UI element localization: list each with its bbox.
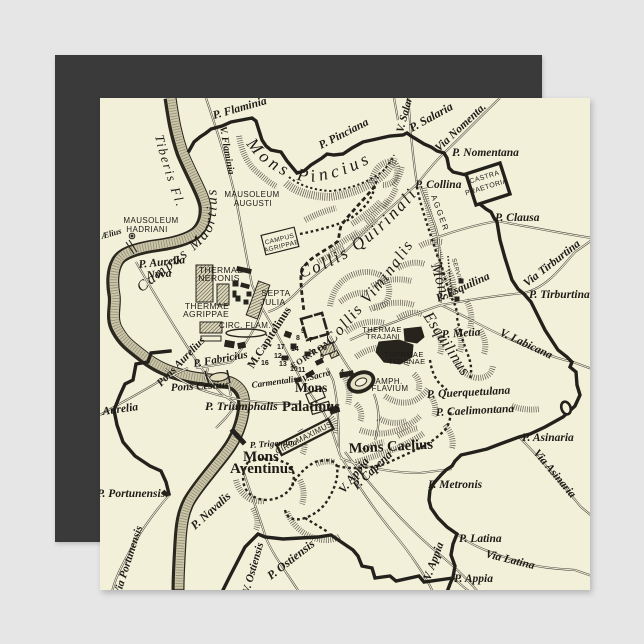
svg-text:P. Appia: P. Appia: [454, 573, 493, 585]
svg-text:JULIA: JULIA: [260, 297, 285, 307]
svg-text:P. Querquetulana: P. Querquetulana: [427, 385, 511, 401]
svg-text:Via Tirburtina: Via Tirburtina: [521, 238, 582, 290]
svg-text:P. Fabricius: P. Fabricius: [192, 349, 248, 370]
svg-text:Aurelia: Aurelia: [101, 401, 139, 418]
svg-text:P. Ostiensis: P. Ostiensis: [264, 536, 317, 582]
svg-text:12: 12: [274, 353, 282, 360]
svg-text:6: 6: [323, 345, 327, 352]
svg-text:V. Appia: V. Appia: [422, 540, 447, 582]
svg-text:9: 9: [301, 328, 305, 335]
svg-text:10: 10: [290, 366, 298, 373]
svg-text:MAUSOLEUM: MAUSOLEUM: [224, 190, 279, 199]
svg-text:AGRIPPAE: AGRIPPAE: [183, 309, 229, 319]
svg-text:CIRC. FLAM.: CIRC. FLAM.: [219, 321, 271, 330]
svg-text:11: 11: [298, 367, 306, 374]
svg-text:P. Metronis: P. Metronis: [428, 479, 483, 491]
svg-text:AUGUSTI: AUGUSTI: [234, 199, 272, 208]
svg-text:P. Asinaria: P. Asinaria: [522, 432, 574, 444]
svg-text:Carmentalis: Carmentalis: [251, 374, 298, 390]
svg-text:P. Tirburtina: P. Tirburtina: [529, 289, 590, 301]
svg-text:Mons: Mons: [295, 380, 327, 395]
svg-text:Ælius: Ælius: [100, 225, 123, 241]
svg-text:Nova: Nova: [145, 267, 172, 282]
svg-text:P. Metia: P. Metia: [441, 326, 481, 341]
svg-text:P. Latina: P. Latina: [459, 533, 502, 545]
svg-text:14: 14: [291, 346, 299, 353]
svg-text:5: 5: [320, 354, 324, 361]
svg-text:P. Clausa: P. Clausa: [495, 212, 540, 224]
svg-text:Esquilinus: Esquilinus: [419, 308, 473, 379]
svg-text:P. Nomentana: P. Nomentana: [452, 147, 519, 159]
svg-text:Palatinus: Palatinus: [282, 399, 340, 415]
svg-text:16: 16: [261, 360, 269, 367]
svg-text:Via Latina: Via Latina: [484, 548, 536, 572]
svg-text:13: 13: [279, 361, 287, 368]
svg-text:Aventinus: Aventinus: [230, 461, 294, 477]
svg-text:P. Portunensis: P. Portunensis: [100, 488, 166, 500]
svg-text:Mons Caelius: Mons Caelius: [348, 437, 433, 457]
svg-text:P. Triumphalis: P. Triumphalis: [205, 399, 278, 413]
svg-text:TITIANAE: TITIANAE: [389, 357, 426, 366]
svg-text:17: 17: [277, 344, 285, 351]
svg-text:4: 4: [340, 369, 344, 376]
svg-text:P. Collina: P. Collina: [415, 179, 462, 191]
svg-text:SERVII: SERVII: [450, 258, 462, 281]
svg-text:8: 8: [296, 335, 300, 342]
svg-text:Via Asinaria: Via Asinaria: [531, 447, 578, 500]
svg-text:15: 15: [308, 349, 316, 356]
svg-text:7: 7: [309, 337, 313, 344]
svg-text:TRAJANI: TRAJANI: [366, 332, 400, 341]
svg-text:Via Portunensis: Via Portunensis: [111, 524, 145, 590]
svg-text:V. Flaminia: V. Flaminia: [217, 126, 236, 176]
svg-text:MAUSOLEUM: MAUSOLEUM: [123, 216, 178, 225]
svg-text:HADRIANI: HADRIANI: [126, 225, 167, 234]
svg-text:NERONIS: NERONIS: [198, 273, 240, 283]
svg-text:P. Flaminia: P. Flaminia: [212, 98, 269, 122]
svg-text:P. Salaria: P. Salaria: [407, 99, 456, 134]
svg-text:P. Caelimontana: P. Caelimontana: [436, 403, 515, 419]
svg-text:FLAVIUM: FLAVIUM: [372, 384, 409, 393]
svg-text:P. Pinciana: P. Pinciana: [317, 116, 371, 151]
